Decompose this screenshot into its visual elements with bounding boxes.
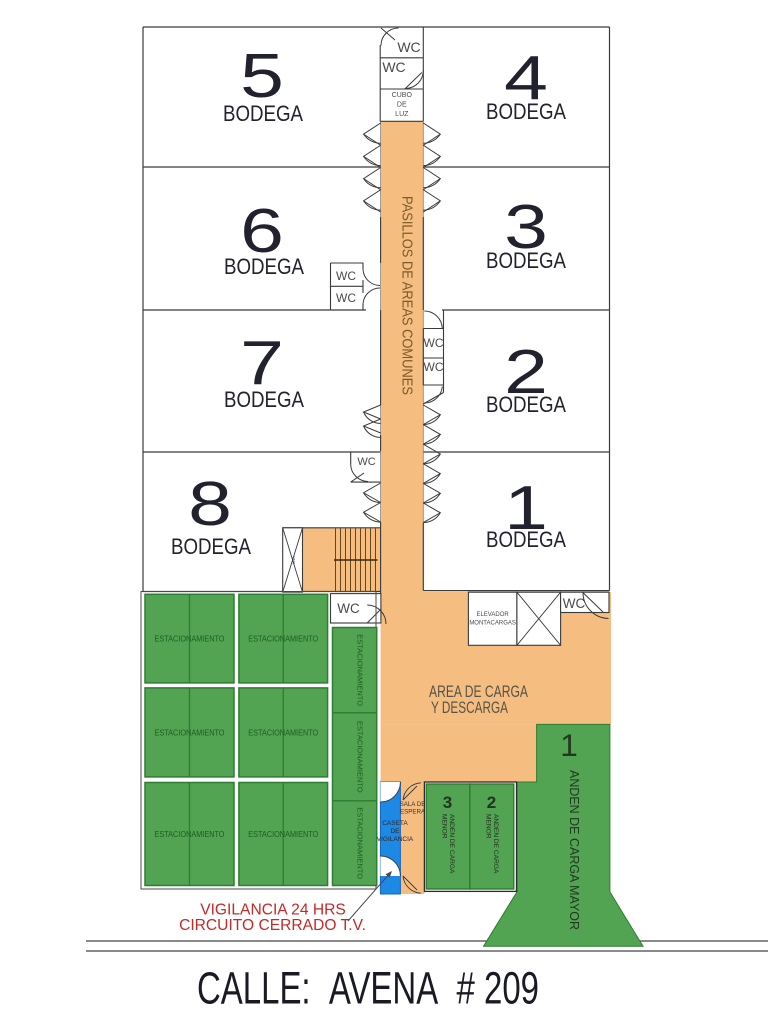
svg-text:2: 2 [487, 793, 496, 812]
svg-text:DE: DE [397, 102, 407, 109]
svg-text:CUBO: CUBO [392, 92, 413, 99]
svg-text:WC: WC [336, 269, 356, 283]
svg-text:SALA DE: SALA DE [400, 801, 426, 808]
svg-text:ESTACIONAMIENTO: ESTACIONAMIENTO [356, 634, 365, 706]
svg-text:ESTACIONAMIENTO: ESTACIONAMIENTO [248, 830, 318, 839]
svg-text:WC: WC [357, 456, 375, 468]
svg-text:CIRCUITO CERRADO T.V.: CIRCUITO CERRADO T.V. [179, 917, 366, 934]
svg-text:ESTACIONAMIENTO: ESTACIONAMIENTO [356, 721, 365, 793]
svg-text:ESTACIONAMIENTO: ESTACIONAMIENTO [155, 728, 225, 737]
svg-text:VIGILANCIA 24 HRS: VIGILANCIA 24 HRS [200, 902, 346, 919]
svg-text:BODEGA: BODEGA [171, 534, 251, 559]
svg-text:DE: DE [390, 828, 400, 835]
svg-text:ESTACIONAMIENTO: ESTACIONAMIENTO [356, 807, 365, 879]
svg-text:WC: WC [424, 360, 444, 374]
svg-text:LUZ: LUZ [395, 111, 409, 118]
svg-text:ESTACIONAMIENTO: ESTACIONAMIENTO [155, 830, 225, 839]
svg-text:BODEGA: BODEGA [224, 254, 304, 279]
svg-text:VAR: VAR [292, 556, 297, 564]
svg-text:BODEGA: BODEGA [486, 527, 566, 552]
svg-text:BODEGA: BODEGA [486, 248, 566, 273]
svg-text:ESPERA: ESPERA [400, 809, 426, 816]
svg-text:ESTACIONAMIENTO: ESTACIONAMIENTO [155, 635, 225, 644]
svg-text:3: 3 [443, 793, 452, 812]
svg-text:ANDEN DE CARGA MAYOR: ANDEN DE CARGA MAYOR [567, 770, 581, 930]
svg-text:WC: WC [563, 596, 586, 611]
svg-text:ESTACIONAMIENTO: ESTACIONAMIENTO [248, 728, 318, 737]
svg-text:WC: WC [382, 59, 405, 75]
svg-text:Y DESCARGA: Y DESCARGA [431, 699, 508, 717]
svg-text:WC: WC [397, 39, 420, 55]
svg-text:WC: WC [336, 291, 356, 305]
svg-text:ESTACIONAMIENTO: ESTACIONAMIENTO [248, 635, 318, 644]
svg-text:CASETA: CASETA [382, 820, 408, 827]
svg-text:WC: WC [337, 601, 360, 616]
svg-text:ELEVADOR: ELEVADOR [476, 612, 509, 618]
svg-text:MONTACARGAS: MONTACARGAS [469, 621, 516, 627]
svg-text:BODEGA: BODEGA [223, 101, 303, 126]
svg-text:CALLE: AVENA # 209: CALLE: AVENA # 209 [197, 963, 539, 1014]
svg-text:ANDEN DE CARGA: ANDEN DE CARGA [448, 814, 455, 874]
svg-text:WC: WC [424, 336, 444, 350]
svg-text:MENOR: MENOR [441, 814, 448, 839]
svg-text:BODEGA: BODEGA [224, 387, 304, 412]
svg-text:VIGILANCIA: VIGILANCIA [377, 836, 414, 843]
svg-text:BODEGA: BODEGA [486, 392, 566, 417]
svg-text:MENOR: MENOR [485, 814, 492, 839]
svg-text:1: 1 [560, 727, 578, 763]
svg-text:ANDEN DE CARGA: ANDEN DE CARGA [492, 814, 499, 874]
svg-text:PASILLOS DE AREAS COMUNES: PASILLOS DE AREAS COMUNES [399, 196, 415, 395]
svg-text:8: 8 [188, 470, 232, 539]
svg-text:BODEGA: BODEGA [486, 99, 566, 124]
